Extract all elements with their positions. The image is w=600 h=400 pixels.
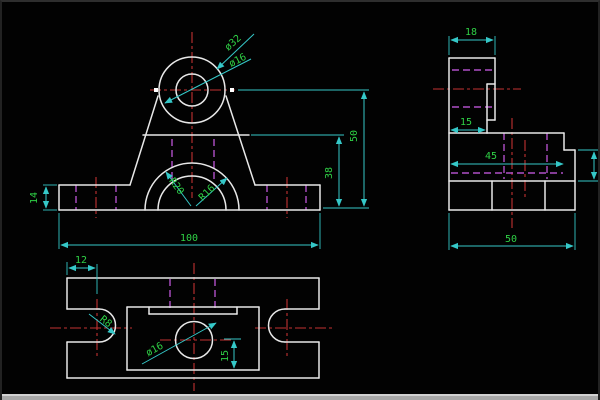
dim-label-total-depth: 50 — [505, 234, 517, 245]
dim-label-boss-width: 18 — [465, 27, 477, 38]
dim-label-step-depth: 15 — [460, 117, 472, 128]
front-view-dimensions: 14 100 38 50 ø32 ø16 R20 R16 — [29, 33, 369, 249]
dim-label-hole-to-edge: 15 — [220, 350, 231, 362]
bottom-border-highlight — [2, 394, 600, 396]
side-view: 18 15 45 50 — [433, 27, 598, 250]
dim-label-boss-inner-dia: ø16 — [227, 52, 248, 70]
dim-label-base-height: 14 — [29, 192, 40, 204]
dim-label-boss-outer-dia: ø32 — [223, 33, 244, 53]
top-view: 12 R8 ø16 15 — [50, 255, 334, 391]
dim-label-hole-dia: ø16 — [144, 341, 165, 359]
dim-label-mid-height: 38 — [324, 167, 335, 179]
front-view-centerlines — [96, 32, 287, 218]
top-view-dimensions: 12 R8 ø16 15 — [67, 255, 241, 368]
front-view: 14 100 38 50 ø32 ø16 R20 R16 — [29, 32, 369, 249]
front-view-geometry — [59, 57, 320, 210]
dim-label-center-height: 50 — [349, 130, 360, 142]
side-view-dimensions: 18 15 45 50 — [449, 27, 598, 250]
cad-drawing: 14 100 38 50 ø32 ø16 R20 R16 — [2, 2, 600, 400]
cad-drawing-canvas: 14 100 38 50 ø32 ø16 R20 R16 — [0, 0, 600, 400]
front-view-hidden-lines — [76, 139, 306, 210]
side-view-centerlines — [433, 89, 525, 228]
dim-label-arch-inner-radius: R16 — [197, 183, 218, 203]
dim-label-total-width: 100 — [180, 233, 198, 244]
dim-label-slot-offset: 12 — [75, 255, 87, 266]
grip-point — [154, 88, 158, 92]
dim-label-arch-outer-radius: R20 — [166, 176, 186, 197]
top-view-centerlines — [50, 263, 334, 391]
dim-label-mid-depth: 45 — [485, 151, 497, 162]
top-view-hidden-lines — [170, 279, 215, 311]
grip-point — [230, 88, 234, 92]
